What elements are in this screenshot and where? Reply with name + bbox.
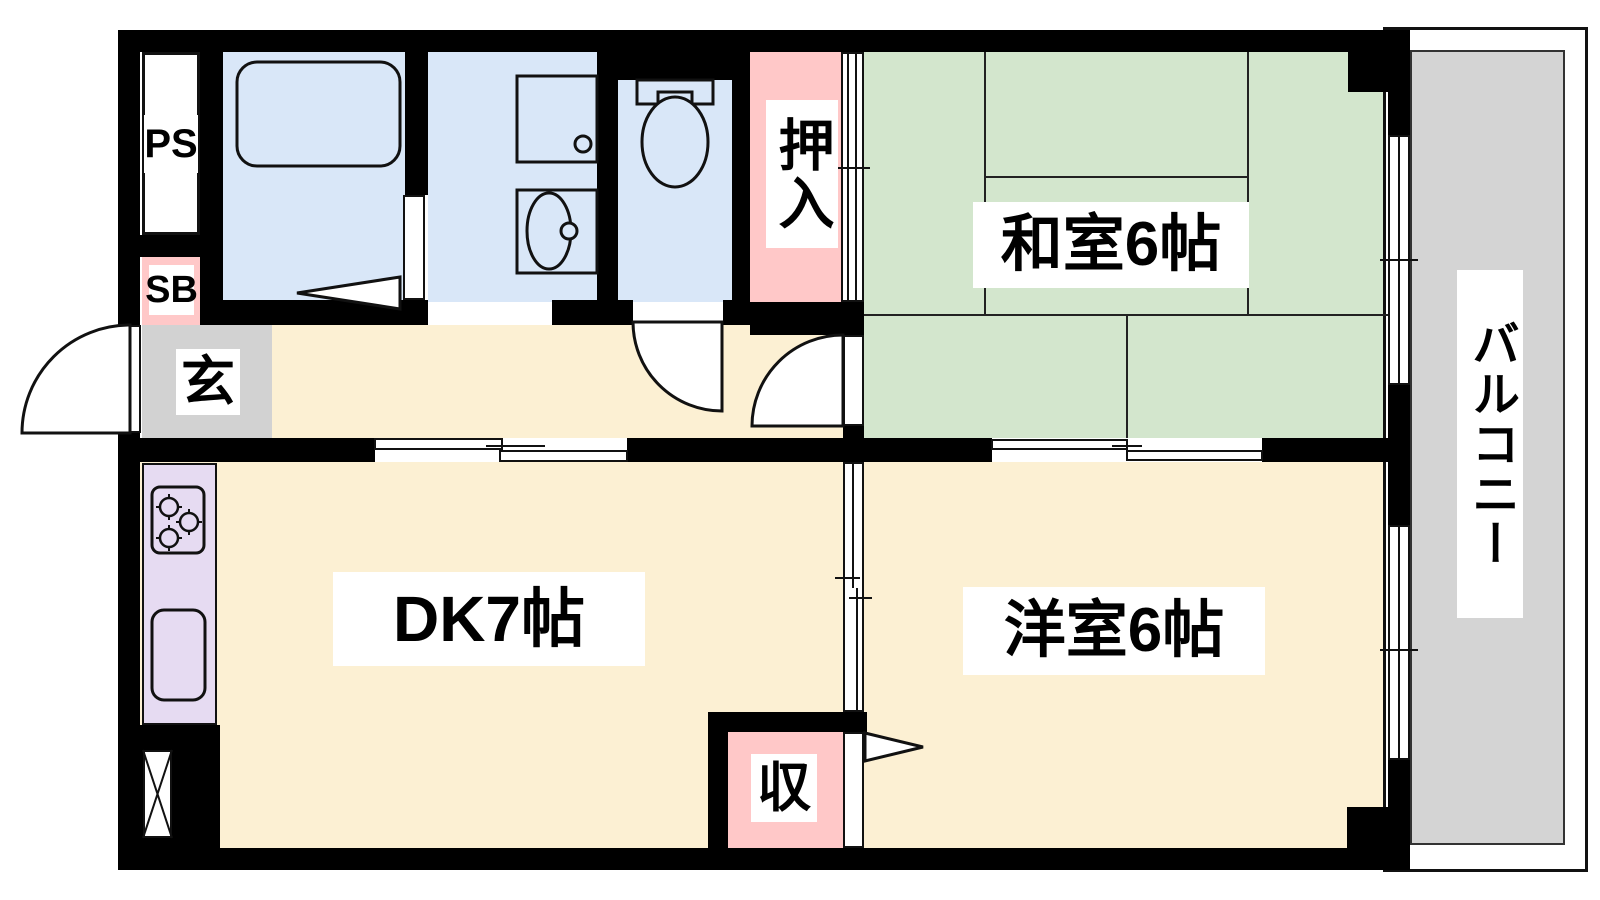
label-shoe-box: SB	[149, 265, 194, 315]
wall-wet-bottom-3	[723, 300, 750, 325]
wall-wet-bottom-2	[552, 300, 633, 325]
wall-bottom	[118, 848, 1410, 870]
dining-kitchen-text: DK7帖	[393, 587, 585, 651]
japanese-room-text: 和室6帖	[1001, 214, 1221, 276]
oshiire-text: 押入	[774, 116, 830, 232]
pipe-space-text: PS	[144, 124, 197, 164]
wall-hall-bottom-right	[627, 438, 864, 462]
wall-ps-right	[200, 52, 223, 325]
wall-oshiire-bottom	[750, 302, 864, 335]
room-hallway	[272, 325, 843, 438]
label-western-room: 洋室6帖	[963, 587, 1265, 675]
wall-toilet-top	[597, 30, 750, 80]
wall-toilet-oshiire	[732, 52, 750, 325]
label-japanese-room: 和室6帖	[973, 202, 1249, 288]
label-dining-kitchen: DK7帖	[333, 572, 645, 666]
window-japanese-balcony	[1388, 135, 1410, 385]
wall-step-bottom-right	[1347, 807, 1388, 848]
fusuma-oshiire	[841, 52, 864, 302]
western-room-text: 洋室6帖	[1004, 600, 1224, 662]
room-washroom	[428, 52, 597, 302]
entrance-text: 玄	[181, 355, 235, 409]
storage-text: 収	[757, 761, 811, 815]
wall-step-top-right	[1348, 52, 1388, 92]
room-bathroom	[223, 52, 405, 300]
wall-top	[118, 30, 1410, 52]
room-toilet	[618, 80, 732, 302]
wall-right-middle	[1388, 385, 1410, 525]
wall-left-upper	[118, 30, 140, 325]
wall-partition-top	[843, 425, 864, 462]
kitchen-counter	[142, 463, 217, 725]
wall-ps-sb-divider	[140, 235, 203, 257]
entrance-door-arc	[22, 325, 130, 433]
wall-wet-bottom-1	[223, 300, 428, 325]
sliding-partition-dk-western	[843, 462, 864, 712]
wall-storage-left	[708, 712, 728, 848]
wall-right-lower	[1388, 760, 1410, 870]
floor-plan: PS SB 玄 押入 和室6帖 DK7帖 洋室6帖 収 バルコニー	[0, 0, 1600, 900]
shoe-box-text: SB	[145, 271, 198, 309]
wall-japanese-western-left	[864, 438, 992, 462]
japanese-room-door-leaf	[843, 335, 864, 426]
wall-bath-washroom	[405, 52, 428, 195]
storage-door-leaf	[843, 732, 864, 848]
gap-washroom-door	[428, 302, 552, 325]
gap-toilet-door	[633, 302, 723, 325]
shaft-x-box	[143, 750, 172, 838]
balcony-text: バルコニー	[1466, 319, 1514, 569]
wall-storage-top	[708, 712, 867, 732]
label-entrance: 玄	[176, 349, 240, 415]
window-western-balcony	[1388, 525, 1410, 760]
bathroom-door-leaf	[403, 195, 425, 300]
label-pipe-space: PS	[144, 115, 198, 173]
wall-japanese-western-right	[1262, 438, 1388, 462]
label-storage: 収	[751, 754, 817, 822]
label-oshiire: 押入	[766, 100, 838, 248]
sliding-door-hall-dk	[375, 439, 627, 461]
wall-washroom-toilet	[597, 52, 618, 325]
entrance-door-leaf	[120, 325, 141, 433]
wall-hall-bottom-left	[118, 438, 375, 462]
sliding-door-japanese-western	[992, 440, 1262, 460]
label-balcony: バルコニー	[1457, 270, 1523, 618]
wall-right-upper	[1388, 30, 1410, 135]
